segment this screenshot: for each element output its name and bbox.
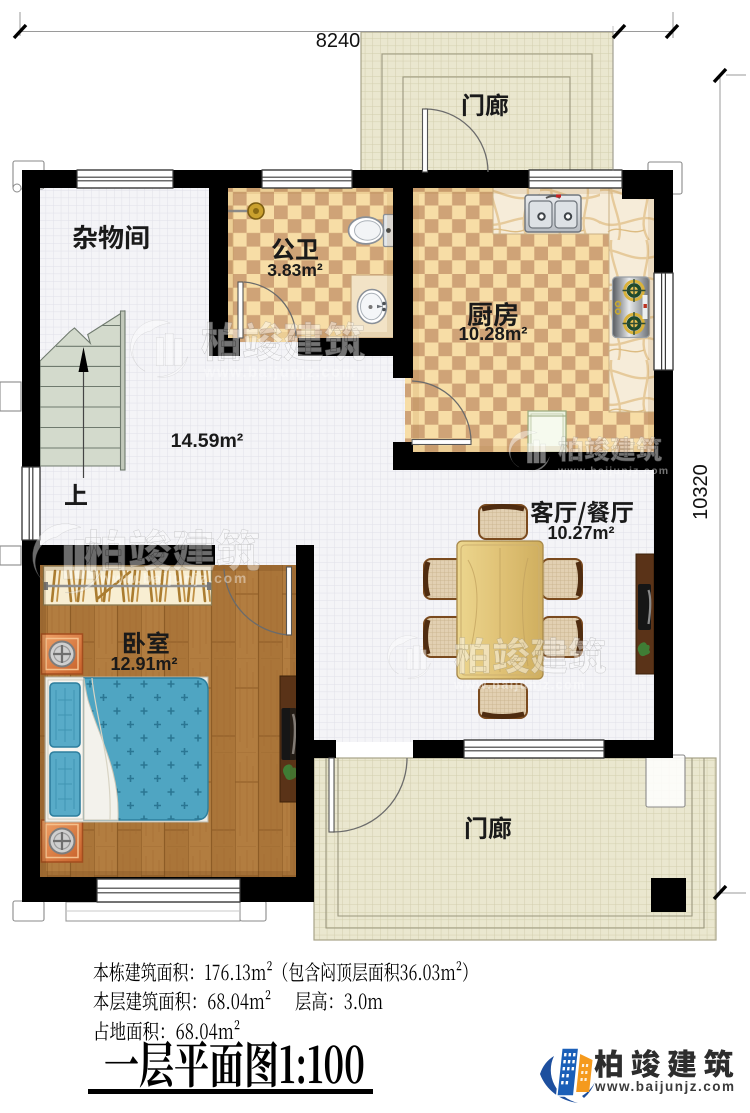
svg-text:10.27m²: 10.27m²	[547, 523, 614, 543]
svg-text:12.91m²: 12.91m²	[110, 654, 177, 674]
svg-text:www.baijunjz.com: www.baijunjz.com	[203, 365, 356, 381]
svg-text:www.baijunjz.com: www.baijunjz.com	[557, 465, 669, 477]
svg-text:www.baijunjz.com: www.baijunjz.com	[453, 678, 586, 692]
svg-text:8240: 8240	[316, 30, 361, 52]
svg-text:10.28m²: 10.28m²	[459, 323, 528, 344]
svg-text:www.baijunjz.com: www.baijunjz.com	[594, 1079, 736, 1094]
svg-text:3.83m²: 3.83m²	[267, 260, 323, 280]
svg-text:www.baijunjz.com: www.baijunjz.com	[99, 570, 248, 586]
svg-text:14.59m²: 14.59m²	[171, 430, 244, 452]
svg-text:10320: 10320	[690, 464, 712, 520]
